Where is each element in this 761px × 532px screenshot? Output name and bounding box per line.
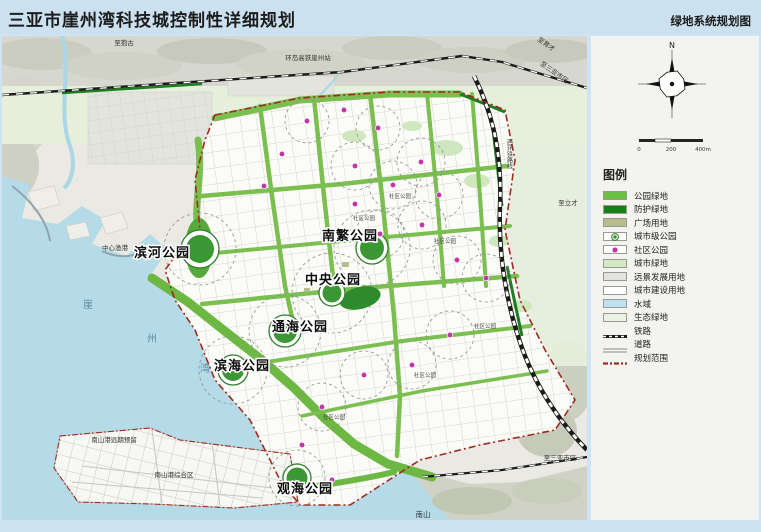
- legend: 图例 公园绿地防护绿地广场用地城市级公园社区公园城市绿地远景发展用地城市建设用地…: [591, 160, 759, 365]
- svg-text:200: 200: [666, 147, 677, 153]
- label-nanfan-park: 南繁公园: [322, 228, 378, 244]
- label-to-sanya-bottom: 至三亚市区: [544, 453, 577, 462]
- label-bay-3: 湾: [200, 362, 210, 375]
- legend-item-label: 道路: [634, 338, 651, 350]
- page-title: 三亚市崖州湾科技城控制性详细规划: [8, 6, 296, 31]
- legend-item-label: 远景发展用地: [634, 271, 685, 283]
- legend-item: 道路: [603, 338, 759, 352]
- label-guanhai-park: 观海公园: [277, 481, 333, 497]
- svg-text:社区公园: 社区公园: [389, 192, 412, 200]
- label-west-rail: 西环铁路线: [506, 139, 513, 169]
- road-icon: [603, 340, 627, 349]
- title-bar: 三亚市崖州湾科技城控制性详细规划 绿地系统规划图: [0, 0, 761, 34]
- legend-item: 铁路: [603, 324, 759, 338]
- legend-item-label: 规划范围: [634, 352, 668, 364]
- map-canvas: 社区公园 社区公园 社区公园 社区公园 社区公园 社区公园 滨河公园 南繁公园 …: [2, 36, 587, 520]
- svg-text:社区公园: 社区公园: [474, 322, 497, 330]
- svg-text:0: 0: [637, 147, 641, 153]
- label-hsr-station: 环岛高铁崖州站: [285, 53, 331, 62]
- svg-text:社区公园: 社区公园: [414, 371, 437, 379]
- label-binhai-park: 滨海公园: [214, 358, 270, 374]
- side-panel: N 0 200 400m 图例 公园绿地防护绿地广场用地城市级公园社区公园城市绿…: [591, 36, 759, 520]
- label-nanshan: 南山: [416, 509, 431, 519]
- label-to-licai: 至立才: [558, 198, 578, 207]
- legend-item: 城市建设用地: [603, 284, 759, 298]
- north-label: N: [669, 41, 675, 50]
- legend-title: 图例: [603, 166, 759, 183]
- railway-icon: [603, 326, 627, 335]
- city-park-icon: [603, 232, 627, 241]
- legend-item: 规划范围: [603, 351, 759, 365]
- legend-item: 公园绿地: [603, 189, 759, 203]
- legend-item: 社区公园: [603, 243, 759, 257]
- label-port-complex: 南山港综合区: [155, 470, 195, 479]
- label-bay-2: 州: [147, 333, 157, 345]
- legend-swatch: [603, 313, 627, 322]
- legend-swatch: [603, 205, 627, 214]
- boundary-icon: [603, 353, 627, 362]
- label-to-baogu: 至抱古: [114, 38, 134, 47]
- label-binhe-park: 滨河公园: [134, 245, 190, 261]
- legend-swatch: [603, 191, 627, 200]
- planning-map-page: 三亚市崖州湾科技城控制性详细规划 绿地系统规划图: [0, 0, 761, 532]
- label-central-park: 中央公园: [305, 272, 361, 288]
- legend-rows: 公园绿地防护绿地广场用地城市级公园社区公园城市绿地远景发展用地城市建设用地水域生…: [603, 189, 759, 365]
- label-fishing-port: 中心渔港: [102, 243, 129, 252]
- legend-item-label: 城市绿地: [634, 257, 668, 269]
- legend-swatch: [603, 218, 627, 227]
- legend-item: 城市绿地: [603, 257, 759, 271]
- legend-swatch: [603, 286, 627, 295]
- legend-item-label: 水域: [634, 298, 651, 310]
- svg-text:社区公园: 社区公园: [434, 237, 457, 245]
- legend-item-label: 社区公园: [634, 244, 668, 256]
- label-port-reserve: 南山港远期预留: [91, 435, 137, 444]
- svg-text:400m: 400m: [695, 147, 711, 153]
- map-sheet-title: 绿地系统规划图: [671, 13, 752, 29]
- label-bay-1: 崖: [83, 299, 93, 311]
- map-svg: 社区公园 社区公园 社区公园 社区公园 社区公园 社区公园 滨河公园 南繁公园 …: [2, 36, 587, 520]
- compass-rose: N: [591, 36, 759, 124]
- legend-item-label: 城市建设用地: [634, 284, 685, 296]
- legend-item-label: 广场用地: [634, 217, 668, 229]
- legend-swatch: [603, 259, 627, 268]
- label-tonghai-park: 通海公园: [272, 319, 328, 335]
- scale-bar: 0 200 400m: [591, 128, 759, 156]
- legend-item: 水域: [603, 297, 759, 311]
- legend-swatch: [603, 272, 627, 281]
- legend-item-label: 城市级公园: [634, 230, 677, 242]
- legend-swatch: [603, 299, 627, 308]
- legend-item: 广场用地: [603, 216, 759, 230]
- community-park-icon: [603, 245, 627, 254]
- legend-item-label: 公园绿地: [634, 190, 668, 202]
- svg-text:社区公园: 社区公园: [323, 413, 346, 421]
- legend-item: 防护绿地: [603, 203, 759, 217]
- legend-item-label: 生态绿地: [634, 311, 668, 323]
- legend-item-label: 铁路: [634, 325, 651, 337]
- legend-item: 城市级公园: [603, 230, 759, 244]
- legend-item-label: 防护绿地: [634, 203, 668, 215]
- legend-item: 远景发展用地: [603, 270, 759, 284]
- svg-text:社区公园: 社区公园: [353, 214, 376, 222]
- legend-item: 生态绿地: [603, 311, 759, 325]
